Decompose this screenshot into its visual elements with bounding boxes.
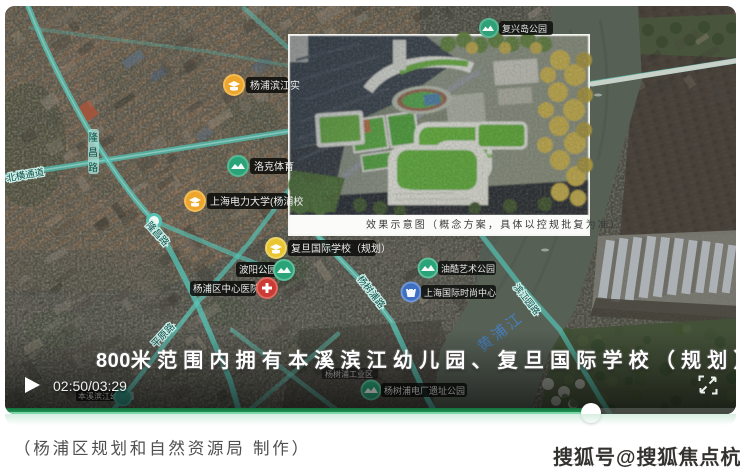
svg-text:杨浦滨江实: 杨浦滨江实	[250, 79, 300, 92]
svg-text:洛克体育: 洛克体育	[254, 160, 294, 173]
svg-text:复旦国际学校（规划）: 复旦国际学校（规划）	[291, 242, 391, 255]
svg-text:路: 路	[88, 161, 98, 174]
svg-text:杨浦区中心医院: 杨浦区中心医院	[193, 283, 260, 295]
svg-text:昌: 昌	[88, 147, 98, 159]
svg-text:波阳公园: 波阳公园	[239, 264, 277, 276]
svg-text:复兴岛公园: 复兴岛公园	[502, 23, 547, 34]
svg-text:上海电力大学(杨浦校: 上海电力大学(杨浦校	[210, 195, 303, 208]
svg-text:上海国际时尚中心: 上海国际时尚中心	[424, 287, 496, 298]
svg-text:油酷艺术公园: 油酷艺术公园	[441, 263, 495, 274]
svg-text:效果示意图（概念方案，具体以控规批复为准）: 效果示意图（概念方案，具体以控规批复为准）	[366, 218, 622, 231]
svg-text:隆: 隆	[88, 131, 98, 144]
